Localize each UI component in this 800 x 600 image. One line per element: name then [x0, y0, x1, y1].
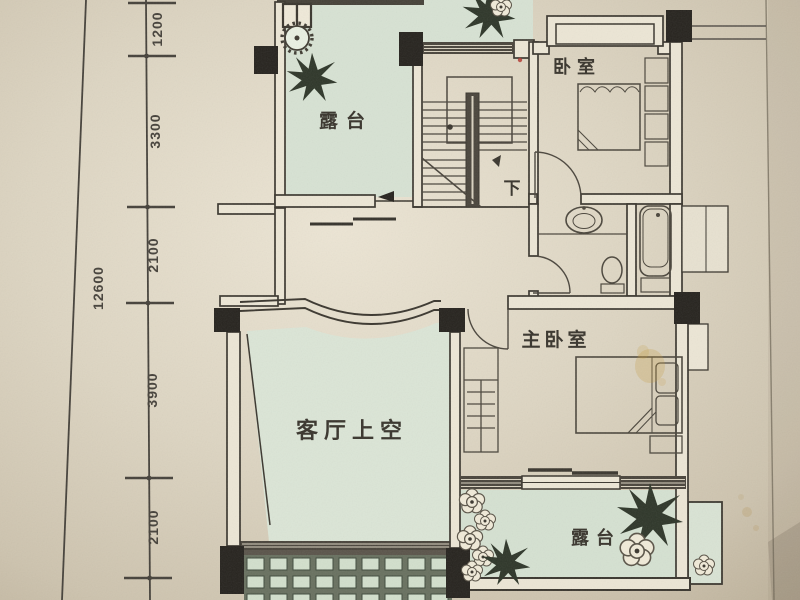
- floorplan-photo: 1200 3300 2100 3900 2100 12600: [0, 0, 800, 600]
- photo-grain: [0, 0, 800, 600]
- floorplan-svg: 1200 3300 2100 3900 2100 12600: [0, 0, 800, 600]
